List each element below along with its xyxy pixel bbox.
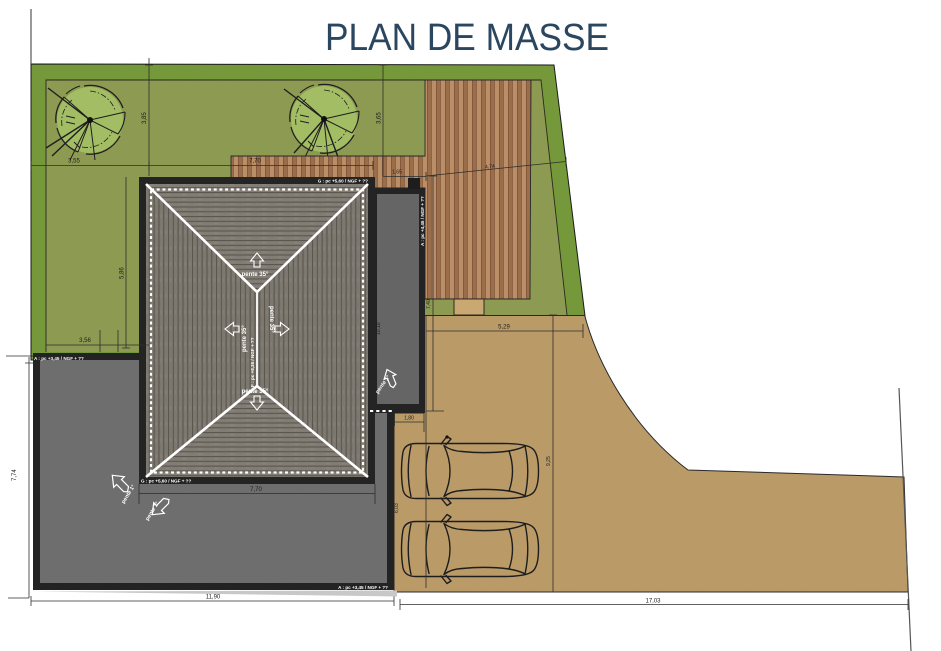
svg-text:3,56: 3,56: [79, 338, 91, 344]
svg-text:pente 35°: pente 35°: [242, 325, 248, 352]
svg-text:3,85: 3,85: [142, 112, 148, 124]
svg-text:1,80: 1,80: [404, 416, 414, 422]
svg-text:9,25: 9,25: [546, 456, 552, 466]
svg-text:F : pc +8,35 / NGF + ??: F : pc +8,35 / NGF + ??: [250, 337, 255, 387]
svg-text:7,70: 7,70: [249, 159, 261, 165]
svg-text:3,55: 3,55: [68, 159, 80, 165]
svg-text:17,03: 17,03: [645, 599, 661, 605]
svg-text:A : pc +3,45 / NGF + ??: A : pc +3,45 / NGF + ??: [34, 356, 84, 361]
svg-text:7,70: 7,70: [250, 487, 262, 493]
svg-text:6,03: 6,03: [394, 503, 400, 513]
svg-text:11,90: 11,90: [206, 595, 221, 601]
svg-text:G : pc +5,60 / NGF + ??: G : pc +5,60 / NGF + ??: [318, 179, 368, 184]
svg-text:5,86: 5,86: [120, 267, 126, 279]
svg-text:7,74: 7,74: [12, 469, 18, 481]
svg-text:10,10: 10,10: [376, 322, 382, 335]
svg-text:1,65: 1,65: [392, 170, 402, 176]
svg-text:4,74: 4,74: [485, 164, 495, 171]
svg-text:3,65: 3,65: [377, 112, 383, 124]
svg-text:A : pc +3,45 / NGF + ??: A : pc +3,45 / NGF + ??: [338, 585, 388, 590]
svg-text:PLAN DE MASSE: PLAN DE MASSE: [325, 17, 609, 59]
svg-text:pente 35°: pente 35°: [242, 389, 269, 395]
svg-text:7,40: 7,40: [426, 299, 432, 309]
svg-text:pente 35°: pente 35°: [242, 272, 269, 278]
svg-text:5,29: 5,29: [498, 325, 510, 331]
svg-text:pente 35°: pente 35°: [268, 306, 274, 333]
svg-text:G : pc +5,60 / NGF + ??: G : pc +5,60 / NGF + ??: [141, 479, 191, 484]
svg-text:A : pc +4,45 / NGF + ??: A : pc +4,45 / NGF + ??: [420, 196, 425, 246]
